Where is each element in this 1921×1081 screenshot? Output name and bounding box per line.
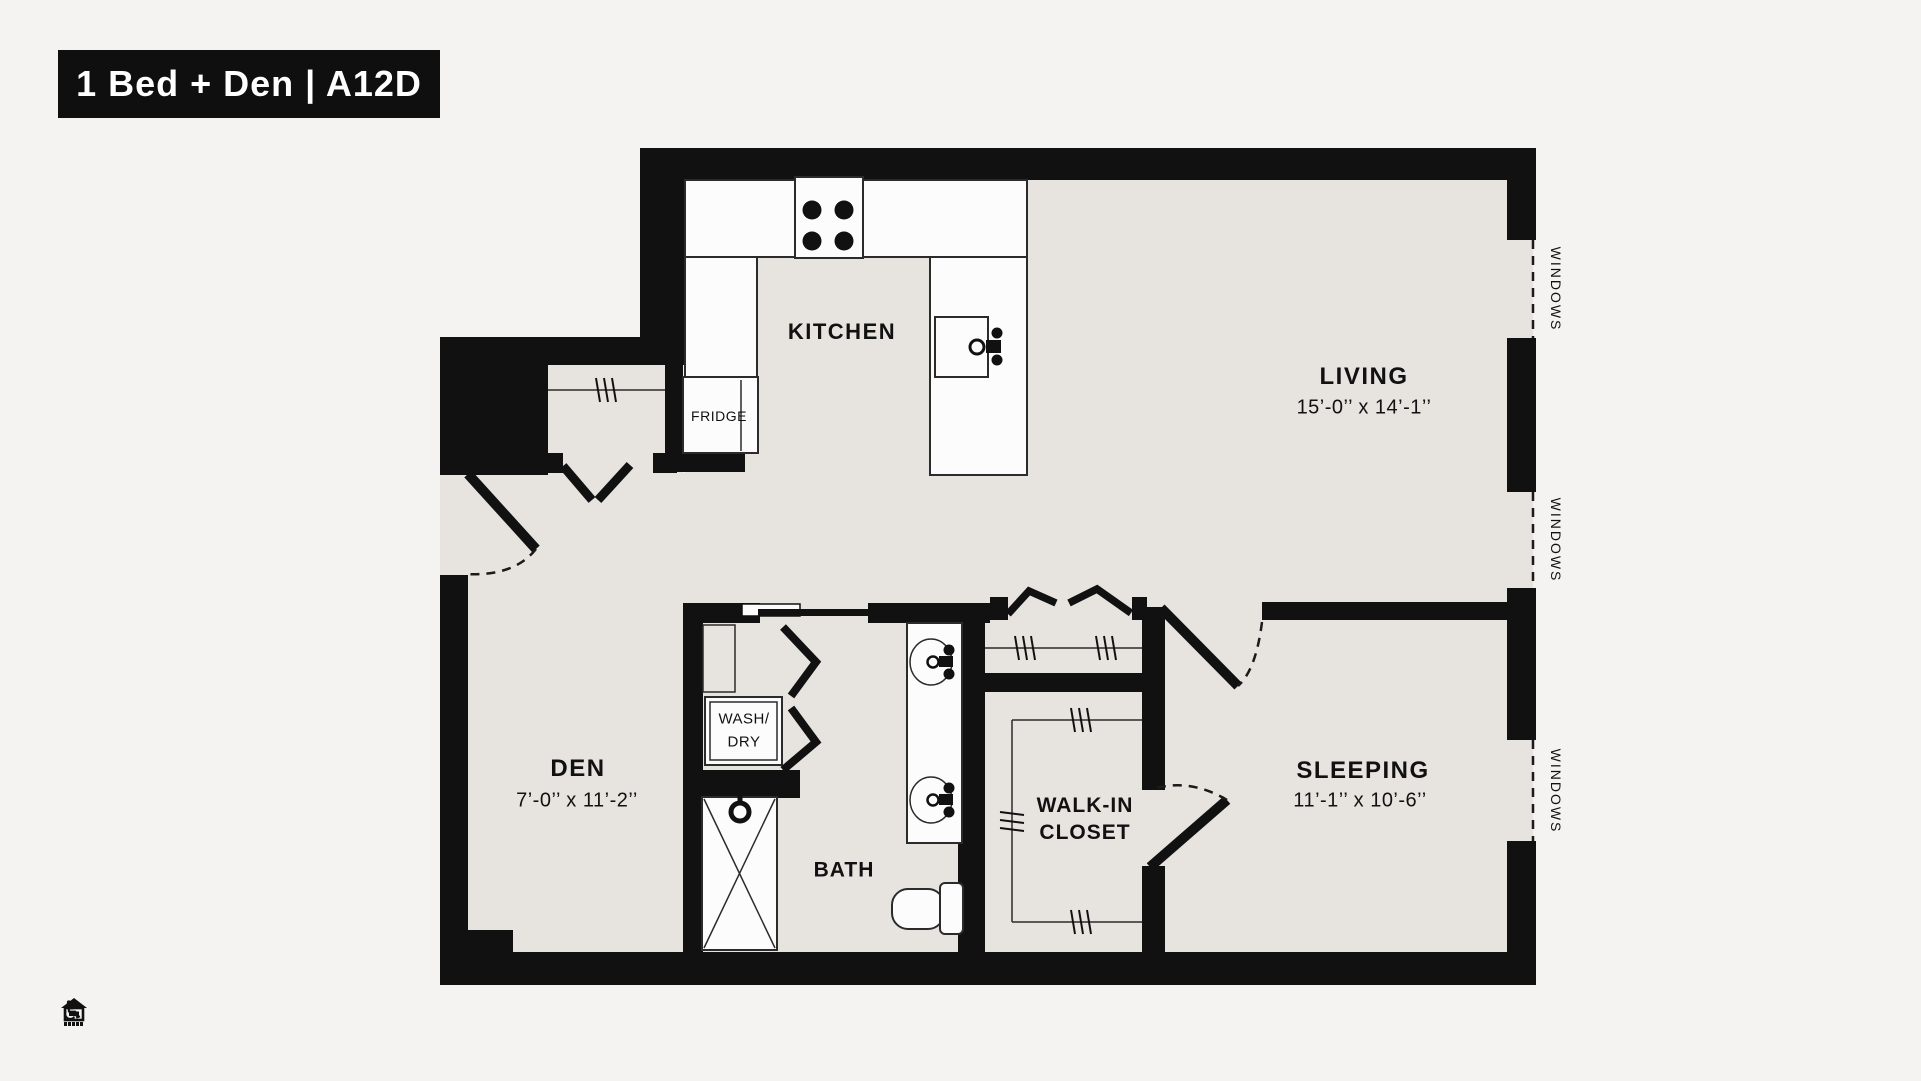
room-label-kitchen: KITCHEN [788, 319, 896, 345]
room-label-living: LIVING [1319, 363, 1408, 391]
shower-icon [702, 788, 777, 950]
room-label-den: DEN [550, 755, 605, 783]
room-dims-living: 15’-0’’ x 14’-1’’ [1297, 397, 1432, 420]
windows-label-top: WINDOWS [1548, 247, 1564, 332]
fridge-label: FRIDGE [691, 408, 747, 424]
plan-title: 1 Bed + Den | A12D [76, 63, 422, 105]
floorplan-page: 1 Bed + Den | A12D KITCHEN LIVING 15’-0’… [0, 0, 1921, 1081]
title-badge: 1 Bed + Den | A12D [58, 50, 440, 118]
room-label-bath: BATH [814, 858, 875, 885]
equal-housing-icon [60, 998, 88, 1028]
vanity-icon [907, 623, 962, 843]
windows-label-middle: WINDOWS [1548, 498, 1564, 583]
windows-label-bottom: WINDOWS [1548, 749, 1564, 834]
room-dims-den: 7’-0’’ x 11’-2’’ [516, 790, 638, 813]
floorplan-drawing [0, 0, 1921, 1081]
toilet-icon [892, 883, 963, 934]
room-label-walk-in-closet: WALK-IN CLOSET [1037, 793, 1134, 847]
footer-icons: ♿ [60, 998, 84, 1025]
room-dims-sleeping: 11’-1’’ x 10’-6’’ [1293, 790, 1426, 813]
stove-icon [795, 177, 863, 258]
washdry-label: WASH/ DRY [718, 709, 769, 754]
room-label-sleeping: SLEEPING [1296, 757, 1429, 785]
